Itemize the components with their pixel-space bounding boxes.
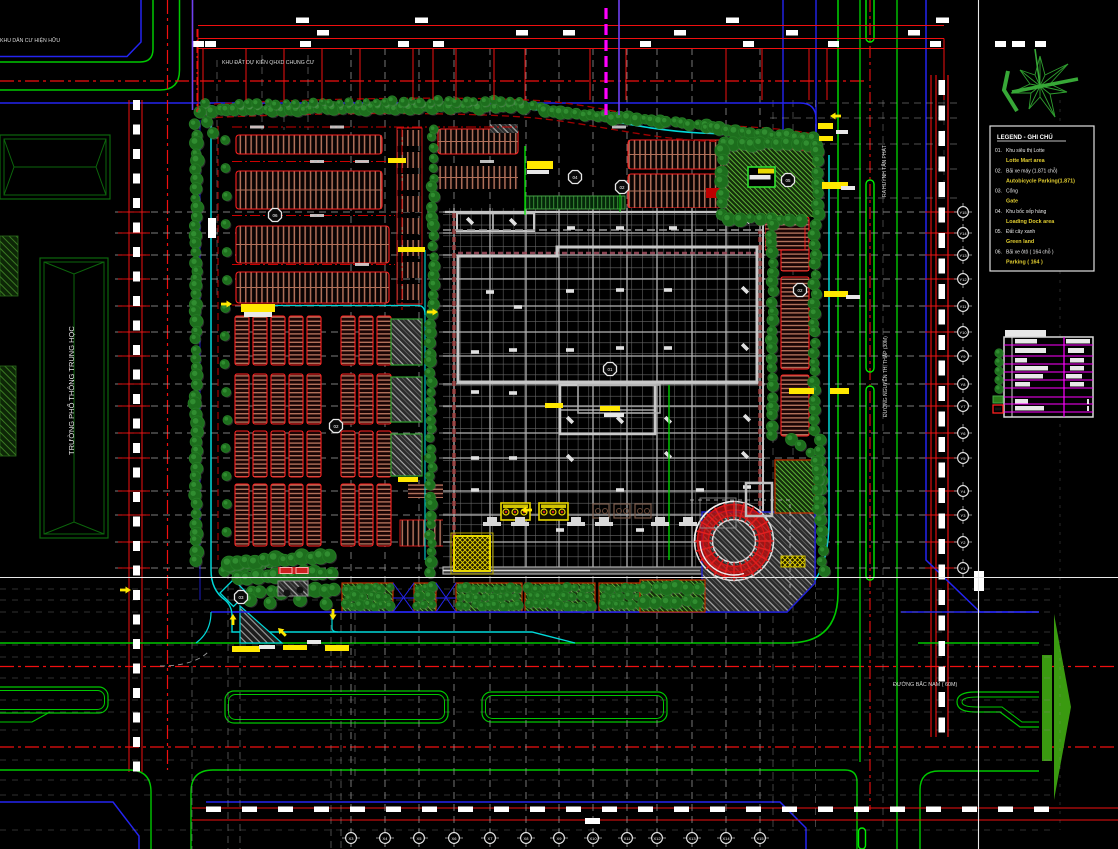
svg-text:TRƯỜNG PHỔ THÔNG TRUNG HỌC: TRƯỜNG PHỔ THÔNG TRUNG HỌC xyxy=(67,326,76,455)
svg-text:LEGEND - GHI CHÚ: LEGEND - GHI CHÚ xyxy=(997,134,1053,141)
svg-text:Y4: Y4 xyxy=(961,489,967,494)
svg-text:Khu bốc xếp hàng: Khu bốc xếp hàng xyxy=(1006,209,1047,215)
svg-text:Autobicycle Parking(1.871): Autobicycle Parking(1.871) xyxy=(1006,178,1075,184)
svg-text:KHU ĐẤT DỰ KIẾN QHXD CHUNG CƯ: KHU ĐẤT DỰ KIẾN QHXD CHUNG CƯ xyxy=(222,59,315,66)
svg-text:05.: 05. xyxy=(995,229,1002,235)
svg-text:Cổng: Cổng xyxy=(1006,188,1018,195)
svg-text:02.: 02. xyxy=(995,168,1002,174)
svg-text:X5: X5 xyxy=(417,836,423,841)
svg-text:Lotte Mart area: Lotte Mart area xyxy=(1006,158,1046,164)
svg-text:Y6: Y6 xyxy=(961,431,967,436)
svg-text:X15: X15 xyxy=(756,836,764,841)
svg-text:03.: 03. xyxy=(995,189,1002,195)
svg-text:04.: 04. xyxy=(995,209,1002,215)
svg-text:X9: X9 xyxy=(557,836,563,841)
svg-text:X6: X6 xyxy=(452,836,458,841)
svg-text:Green land: Green land xyxy=(1006,239,1034,245)
svg-text:02: 02 xyxy=(619,185,625,190)
svg-text:X11: X11 xyxy=(624,836,632,841)
svg-text:04: 04 xyxy=(572,175,578,180)
svg-text:X13: X13 xyxy=(688,836,696,841)
svg-text:Y12: Y12 xyxy=(959,277,967,282)
svg-text:Y10: Y10 xyxy=(959,330,967,335)
svg-text:X4: X4 xyxy=(383,836,389,841)
svg-text:Y7: Y7 xyxy=(961,404,967,409)
svg-text:05: 05 xyxy=(785,178,791,183)
svg-text:Loading Dock area: Loading Dock area xyxy=(1006,219,1055,225)
svg-text:Parking ( 164 ): Parking ( 164 ) xyxy=(1006,260,1043,266)
svg-text:02: 02 xyxy=(797,288,803,293)
svg-text:Bãi xe ôtô ( 164 chỗ ): Bãi xe ôtô ( 164 chỗ ) xyxy=(1006,249,1054,256)
svg-text:Bãi xe máy (1.871 chỗ): Bãi xe máy (1.871 chỗ) xyxy=(1006,167,1058,174)
svg-text:Y15: Y15 xyxy=(959,210,967,215)
svg-text:ĐƯỜNG NGUYỄN THỊ THẬP (30M): ĐƯỜNG NGUYỄN THỊ THẬP (30M) xyxy=(882,336,889,417)
svg-text:01: 01 xyxy=(607,367,613,372)
svg-text:X12: X12 xyxy=(653,836,661,841)
svg-text:KHU DÂN CƯ HIỆN HỮU: KHU DÂN CƯ HIỆN HỮU xyxy=(0,36,60,44)
svg-text:Y3: Y3 xyxy=(961,513,967,518)
svg-text:02: 02 xyxy=(333,424,339,429)
svg-text:Y2: Y2 xyxy=(961,540,967,545)
svg-text:01.: 01. xyxy=(995,148,1002,154)
svg-text:X14: X14 xyxy=(722,836,730,841)
svg-text:06: 06 xyxy=(272,213,278,218)
svg-text:Khu siêu thị Lotte: Khu siêu thị Lotte xyxy=(1006,148,1045,154)
svg-text:Đất cây xanh: Đất cây xanh xyxy=(1006,229,1035,235)
svg-text:RA HUỲNH TẤN PHÁT: RA HUỲNH TẤN PHÁT xyxy=(881,145,888,197)
svg-text:X3: X3 xyxy=(349,836,355,841)
svg-text:X8: X8 xyxy=(524,836,530,841)
svg-text:03: 03 xyxy=(238,595,244,600)
svg-text:ĐƯỜNG BẮC NAM ( 60M): ĐƯỜNG BẮC NAM ( 60M) xyxy=(893,680,958,688)
svg-text:X7: X7 xyxy=(488,836,494,841)
svg-text:X10: X10 xyxy=(589,836,597,841)
svg-text:Y1: Y1 xyxy=(961,566,967,571)
svg-text:Y9: Y9 xyxy=(961,354,967,359)
svg-text:Gate: Gate xyxy=(1006,199,1018,205)
svg-text:Y11: Y11 xyxy=(960,304,968,309)
svg-text:Y5: Y5 xyxy=(961,456,967,461)
svg-text:Y13: Y13 xyxy=(959,253,967,258)
svg-text:06.: 06. xyxy=(995,250,1002,256)
svg-text:Y14: Y14 xyxy=(959,231,967,236)
svg-text:Y8: Y8 xyxy=(961,382,967,387)
